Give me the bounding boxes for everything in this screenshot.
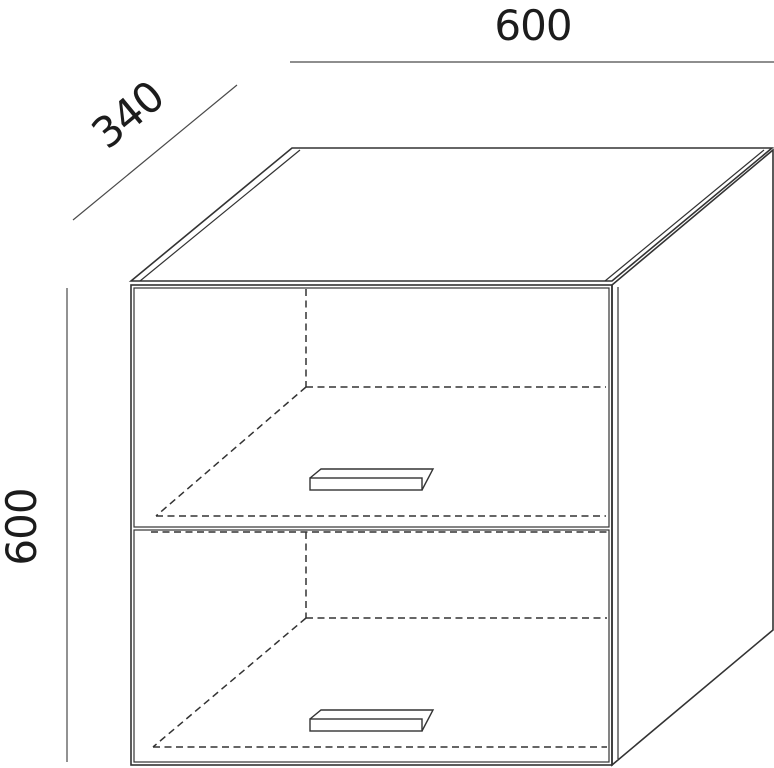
- height-dimension: 600: [0, 288, 67, 762]
- cabinet: [131, 148, 773, 765]
- lower-interior-bottom-left-edge-line: [153, 618, 306, 747]
- cabinet-technical-drawing: 600 340 600: [0, 0, 774, 768]
- lower-handle-front-face: [310, 719, 422, 731]
- depth-dimension: 340: [73, 71, 237, 220]
- upper-door-handle: [310, 469, 433, 490]
- cabinet-front-frame: [131, 285, 612, 765]
- drawing-canvas: 600 340 600: [0, 0, 774, 768]
- upper-interior-bottom-left-edge-line: [156, 387, 306, 516]
- width-dimension-label: 600: [494, 1, 571, 50]
- lower-door-handle: [310, 710, 433, 731]
- upper-door-panel: [134, 288, 609, 527]
- depth-dimension-label: 340: [82, 71, 173, 158]
- upper-handle-front-face: [310, 478, 422, 490]
- height-dimension-label: 600: [0, 488, 46, 565]
- width-dimension: 600: [290, 1, 774, 62]
